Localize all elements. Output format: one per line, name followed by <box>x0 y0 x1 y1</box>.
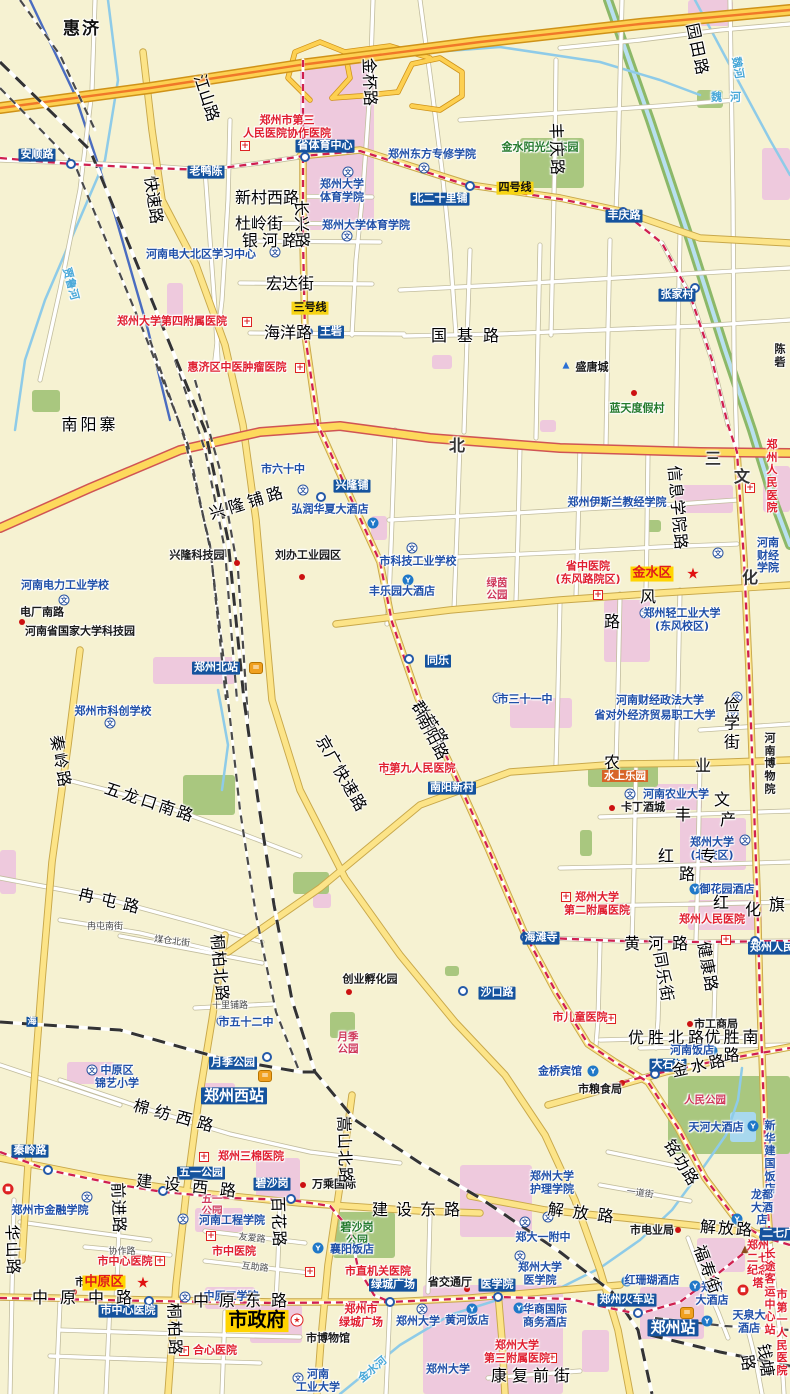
pink-area <box>432 355 452 369</box>
jialu-river <box>15 0 118 430</box>
road-path <box>20 1222 150 1240</box>
road-path <box>576 448 580 597</box>
qiantang-road <box>748 1330 762 1394</box>
road-path <box>606 240 610 444</box>
road-path <box>205 1231 305 1243</box>
green-area <box>330 1012 355 1038</box>
road-path <box>460 100 736 120</box>
road-path <box>56 1302 60 1394</box>
longhai-railway <box>0 1022 315 1072</box>
rail-path <box>20 0 95 130</box>
green-area <box>445 966 459 976</box>
road-path <box>516 444 520 601</box>
rail-path <box>20 0 95 130</box>
jianshe-road <box>0 1158 480 1213</box>
zhengzhou-city-map: 文文文文文文文文文文文文文文文文文文文文文文文文文+++++++++++++++… <box>0 0 790 1394</box>
road-path <box>770 1242 784 1394</box>
pink-area <box>195 1208 243 1232</box>
pink-area <box>640 1287 704 1339</box>
pink-area <box>540 420 556 432</box>
road-path <box>536 245 540 438</box>
pink-area <box>167 283 183 318</box>
road-path <box>85 1247 170 1255</box>
pink-area <box>697 1238 745 1272</box>
road-path <box>245 241 380 242</box>
road-path <box>676 590 680 762</box>
green-area <box>32 390 60 412</box>
pink-area <box>604 600 650 662</box>
pink-area <box>762 148 790 200</box>
road-path <box>632 764 636 941</box>
map-canvas <box>0 0 790 1394</box>
road-path <box>556 600 560 766</box>
green-area <box>183 775 235 815</box>
road-path <box>646 450 648 592</box>
road-path <box>60 920 212 950</box>
road-path <box>205 170 218 360</box>
pond <box>730 1112 756 1142</box>
road-path <box>608 1152 695 1170</box>
pink-area <box>371 516 387 540</box>
road-path <box>250 223 372 224</box>
road-path <box>255 196 372 197</box>
rail-path <box>150 340 226 700</box>
road-path <box>428 1213 430 1292</box>
jianshe-road <box>0 1158 480 1213</box>
baihua-road <box>276 1202 280 1301</box>
blue-road <box>30 0 170 420</box>
pink-area <box>654 784 702 810</box>
pink-area <box>510 698 572 728</box>
north-stream <box>395 47 700 95</box>
shilipu-road <box>195 1004 272 1008</box>
green-area <box>580 830 592 856</box>
pink-area <box>582 1330 609 1372</box>
yidao-street <box>600 1185 690 1201</box>
road-path <box>390 544 737 560</box>
pink-area <box>256 1158 300 1200</box>
pink-area <box>67 1062 115 1084</box>
dongfeng-road <box>336 585 790 624</box>
pink-area <box>203 1083 235 1103</box>
road-path <box>250 333 404 334</box>
road-path <box>106 1302 110 1394</box>
pink-area <box>0 850 16 894</box>
road-path <box>386 1302 390 1394</box>
road-path <box>205 1261 310 1273</box>
rail-path <box>150 340 226 700</box>
longhai-railway <box>0 1022 315 1072</box>
